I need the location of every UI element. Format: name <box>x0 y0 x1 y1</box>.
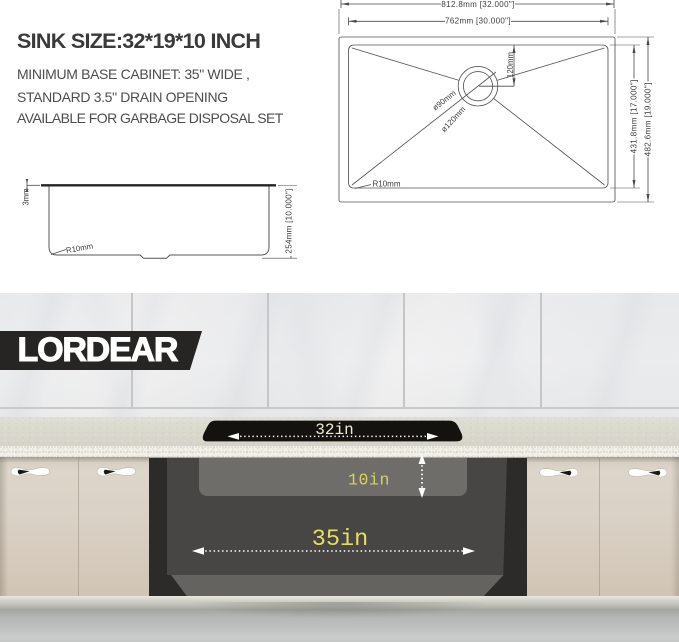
svg-text:3mm: 3mm <box>22 188 31 205</box>
svg-text:482.6mm [19.000"]: 482.6mm [19.000"] <box>643 82 653 156</box>
svg-text:812.8mm [32.000"]: 812.8mm [32.000"] <box>441 0 514 9</box>
svg-text:762mm [30.000"]: 762mm [30.000"] <box>445 17 511 26</box>
svg-text:431.8mm [17.000"]: 431.8mm [17.000"] <box>629 79 639 153</box>
svg-text:ø90mm: ø90mm <box>431 88 458 112</box>
svg-text:120mm: 120mm <box>506 52 515 78</box>
svg-text:10in: 10in <box>348 471 390 490</box>
svg-text:254mm [10.000"]: 254mm [10.000"] <box>285 188 294 253</box>
svg-text:ø120mm: ø120mm <box>439 104 467 133</box>
svg-text:R10mm: R10mm <box>373 180 401 189</box>
svg-text:R10mm: R10mm <box>65 241 93 255</box>
